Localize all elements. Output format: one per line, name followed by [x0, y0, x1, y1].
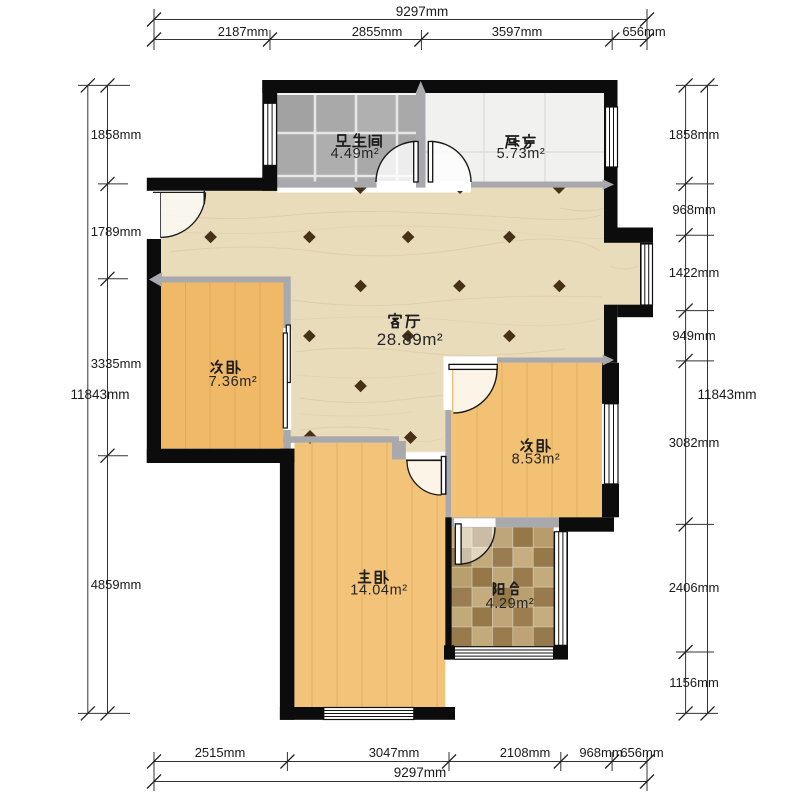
- svg-text:656mm: 656mm: [620, 745, 663, 760]
- svg-text:3047mm: 3047mm: [369, 745, 420, 760]
- svg-text:1858mm: 1858mm: [91, 127, 142, 142]
- svg-text:28.89m²: 28.89m²: [377, 330, 444, 349]
- svg-text:11843mm: 11843mm: [70, 387, 129, 402]
- svg-text:9297mm: 9297mm: [396, 4, 449, 19]
- svg-text:656mm: 656mm: [622, 24, 665, 39]
- svg-text:14.04m²: 14.04m²: [350, 583, 407, 599]
- svg-text:2108mm: 2108mm: [500, 745, 551, 760]
- svg-text:968mm: 968mm: [672, 202, 715, 217]
- svg-text:968mm: 968mm: [579, 745, 622, 760]
- svg-text:2515mm: 2515mm: [195, 745, 246, 760]
- svg-text:11843mm: 11843mm: [697, 387, 756, 402]
- svg-text:3335mm: 3335mm: [91, 356, 142, 371]
- svg-text:5.73m²: 5.73m²: [497, 146, 546, 162]
- svg-text:4.29m²: 4.29m²: [486, 596, 535, 612]
- svg-text:1156mm: 1156mm: [669, 675, 719, 690]
- svg-text:4859mm: 4859mm: [91, 577, 142, 592]
- svg-text:1789mm: 1789mm: [91, 224, 142, 239]
- svg-text:1422mm: 1422mm: [669, 265, 720, 280]
- svg-text:9297mm: 9297mm: [394, 765, 447, 780]
- svg-text:2855mm: 2855mm: [352, 24, 403, 39]
- svg-text:2187mm: 2187mm: [218, 24, 269, 39]
- svg-text:3082mm: 3082mm: [669, 435, 720, 450]
- svg-text:1858mm: 1858mm: [669, 127, 720, 142]
- svg-text:4.49m²: 4.49m²: [331, 146, 380, 162]
- svg-text:2406mm: 2406mm: [669, 580, 720, 595]
- svg-text:3597mm: 3597mm: [492, 24, 543, 39]
- svg-text:7.36m²: 7.36m²: [209, 374, 258, 390]
- svg-text:8.53m²: 8.53m²: [512, 452, 561, 468]
- svg-text:949mm: 949mm: [672, 328, 715, 343]
